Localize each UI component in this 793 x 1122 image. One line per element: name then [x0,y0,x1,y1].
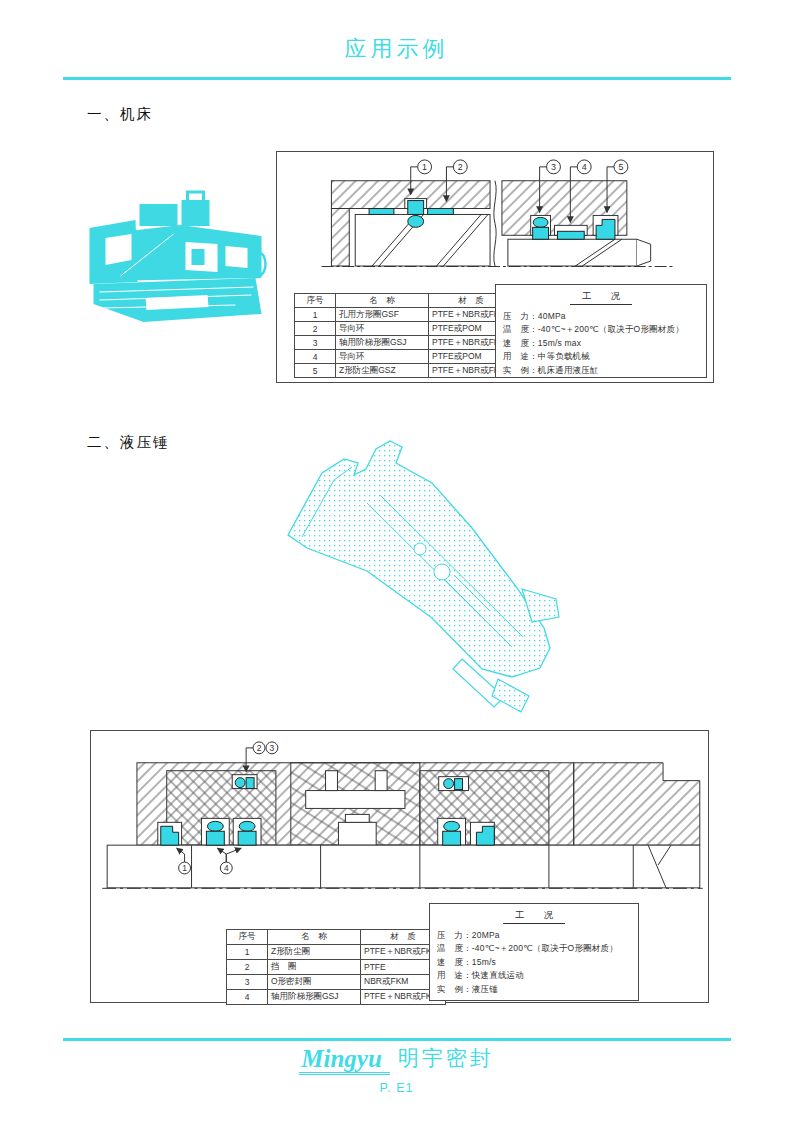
cell-name: 轴用阶梯形圈GSJ [336,336,429,350]
top-rule [63,77,731,80]
col-header-name: 名 称 [268,930,361,945]
cell-no: 3 [227,975,268,990]
table-row: 4 导向环 PTFE或POM [295,350,514,364]
svg-text:1: 1 [422,162,427,172]
col-header-name: 名 称 [336,294,429,308]
svg-text:4: 4 [582,162,587,172]
brand-name-cn: 明宇密封 [398,1046,494,1069]
cell-no: 2 [227,960,268,975]
table-row: 1 Z形防尘圈 PTFE＋NBR或FKM [227,945,446,960]
svg-text:2: 2 [458,162,463,172]
table-row: 3 轴用阶梯形圈GSJ PTFE＋NBR或FKM [295,336,514,350]
cell-no: 4 [295,350,336,364]
cell-name: 孔用方形圈GSF [336,308,429,322]
conditions-title: 工 况 [437,909,631,924]
cell-no: 4 [227,990,268,1005]
svg-text:3: 3 [270,743,275,753]
svg-text:2: 2 [257,743,262,753]
table-row: 4 轴用阶梯形圈GSJ PTFE＋NBR或FKM [227,990,446,1005]
condition-line: 压 力：20MPa [437,929,631,942]
working-conditions-2: 工 况 压 力：20MPa 温 度：-40℃~＋200℃（取决于O形圈材质） 速… [429,903,639,1001]
working-conditions-1: 工 况 压 力：40MPa 温 度：-40℃~＋200℃（取决于O形圈材质） 速… [495,284,707,378]
table-row: 1 孔用方形圈GSF PTFE＋NBR或FKM [295,308,514,322]
svg-text:3: 3 [551,162,556,172]
page-title: 应用示例 [0,34,793,64]
brand-name-en: Mingyu [299,1045,390,1075]
conditions-title: 工 况 [503,290,699,305]
cell-no: 5 [295,364,336,378]
table-header-row: 序号 名 称 材 质 [295,294,514,308]
machine-tool-illustration [83,188,273,333]
cell-no: 3 [295,336,336,350]
catalog-page: 应用示例 一、机床 [0,0,793,1122]
cell-name: Z形防尘圈GSZ [336,364,429,378]
svg-text:1: 1 [182,863,187,873]
condition-line: 实 例：液压锤 [437,983,631,996]
condition-line: 实 例：机床通用液压缸 [503,364,699,377]
table-header-row: 序号 名 称 材 质 [227,930,446,945]
svg-text:5: 5 [618,162,623,172]
table-row: 5 Z形防尘圈GSZ PTFE＋NBR或FKM [295,364,514,378]
condition-line: 温 度：-40℃~＋200℃（取决于O形圈材质） [437,942,631,955]
parts-table-2: 序号 名 称 材 质 1 Z形防尘圈 PTFE＋NBR或FKM 2 挡 圈 PT… [226,929,446,1005]
bottom-rule [63,1038,731,1041]
cell-name: 导向环 [336,350,429,364]
cell-no: 1 [227,945,268,960]
condition-line: 速 度：15m/s [437,956,631,969]
hydraulic-hammer-illustration [272,433,567,721]
condition-line: 用 途：快速直线运动 [437,969,631,982]
condition-line: 温 度：-40℃~＋200℃（取决于O形圈材质） [503,323,699,336]
condition-line: 用 途：中等负载机械 [503,350,699,363]
table-row: 3 O形密封圈 NBR或FKM [227,975,446,990]
col-header-no: 序号 [295,294,336,308]
cell-name: 挡 圈 [268,960,361,975]
condition-line: 压 力：40MPa [503,310,699,323]
cell-name: 导向环 [336,322,429,336]
section-one-heading: 一、机床 [87,105,153,124]
page-number: P. E1 [0,1081,793,1095]
cell-name: O形密封圈 [268,975,361,990]
table-row: 2 挡 圈 PTFE [227,960,446,975]
cell-name: 轴用阶梯形圈GSJ [268,990,361,1005]
cell-no: 2 [295,322,336,336]
seal-diagram-panel-2: 2 3 1 4 [90,730,709,1003]
cell-no: 1 [295,308,336,322]
seal-diagram-panel-1: 1 2 3 4 [276,151,714,383]
condition-line: 速 度：15m/s max [503,337,699,350]
parts-table-1: 序号 名 称 材 质 1 孔用方形圈GSF PTFE＋NBR或FKM 2 导向环… [294,293,514,378]
cell-name: Z形防尘圈 [268,945,361,960]
section-two-heading: 二、液压锤 [87,433,170,452]
svg-text:4: 4 [224,863,229,873]
callout-3-badge: 3 [266,742,278,754]
brand-logo: Mingyu明宇密封 [0,1044,793,1073]
table-row: 2 导向环 PTFE或POM [295,322,514,336]
col-header-no: 序号 [227,930,268,945]
